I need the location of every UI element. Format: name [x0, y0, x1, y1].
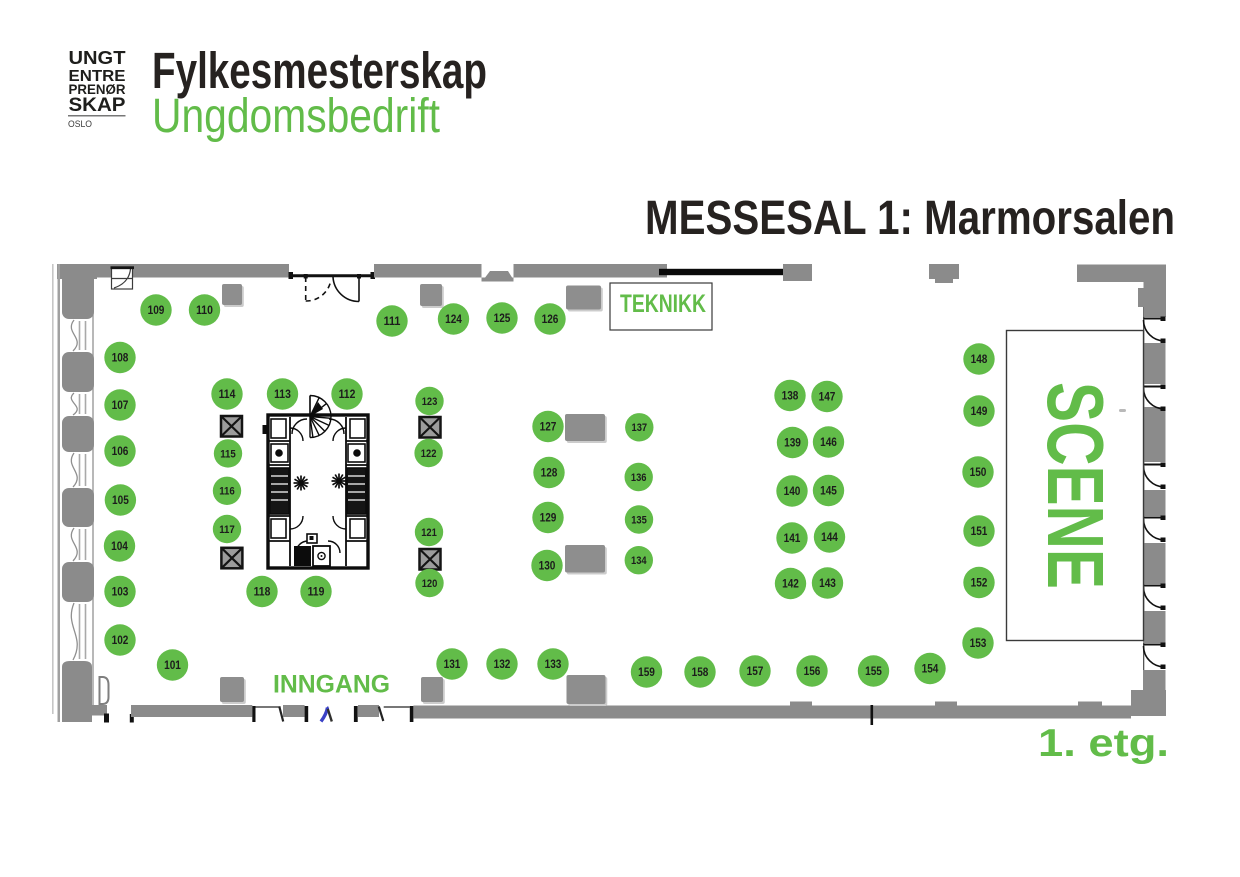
svg-text:110: 110 — [196, 305, 213, 317]
svg-text:INNGANG: INNGANG — [273, 671, 390, 699]
svg-text:121: 121 — [421, 527, 437, 539]
svg-text:130: 130 — [539, 561, 556, 573]
svg-text:158: 158 — [692, 667, 709, 679]
svg-text:139: 139 — [784, 438, 801, 450]
svg-text:129: 129 — [540, 513, 557, 525]
svg-text:MESSESAL 1: Marmorsalen: MESSESAL 1: Marmorsalen — [645, 192, 1175, 245]
svg-text:154: 154 — [922, 664, 939, 676]
svg-text:155: 155 — [865, 666, 882, 678]
svg-text:120: 120 — [422, 578, 438, 590]
svg-text:135: 135 — [631, 514, 647, 526]
svg-text:128: 128 — [541, 468, 558, 480]
svg-text:125: 125 — [494, 313, 511, 325]
svg-text:126: 126 — [542, 314, 559, 326]
svg-text:136: 136 — [631, 472, 647, 484]
svg-text:113: 113 — [274, 389, 291, 401]
svg-text:134: 134 — [631, 555, 647, 567]
svg-text:122: 122 — [421, 448, 437, 460]
svg-text:SCENE: SCENE — [1031, 382, 1120, 589]
svg-text:146: 146 — [820, 437, 837, 449]
svg-text:131: 131 — [444, 659, 461, 671]
svg-text:133: 133 — [545, 659, 562, 671]
svg-text:137: 137 — [632, 422, 648, 434]
svg-text:119: 119 — [308, 587, 325, 599]
svg-text:152: 152 — [971, 578, 988, 590]
svg-text:156: 156 — [804, 666, 821, 678]
svg-text:150: 150 — [970, 467, 987, 479]
svg-text:151: 151 — [971, 526, 988, 538]
svg-text:111: 111 — [384, 316, 401, 328]
svg-text:124: 124 — [445, 314, 462, 326]
svg-text:153: 153 — [970, 638, 987, 650]
svg-text:117: 117 — [219, 524, 235, 536]
svg-text:Ungdomsbedrift: Ungdomsbedrift — [152, 90, 440, 143]
svg-text:105: 105 — [112, 495, 129, 507]
svg-text:108: 108 — [112, 353, 129, 365]
svg-text:145: 145 — [820, 486, 837, 498]
svg-text:1. etg.: 1. etg. — [1038, 722, 1169, 765]
svg-text:103: 103 — [112, 587, 129, 599]
svg-text:109: 109 — [148, 305, 165, 317]
svg-text:SKAP: SKAP — [69, 94, 126, 116]
svg-text:107: 107 — [112, 400, 129, 412]
svg-text:TEKNIKK: TEKNIKK — [620, 290, 706, 318]
svg-text:138: 138 — [782, 391, 799, 403]
svg-text:112: 112 — [339, 389, 356, 401]
svg-text:148: 148 — [971, 354, 988, 366]
svg-text:141: 141 — [784, 533, 801, 545]
svg-text:UNGT: UNGT — [69, 48, 126, 68]
svg-text:142: 142 — [782, 579, 799, 591]
svg-text:101: 101 — [164, 660, 181, 672]
svg-text:143: 143 — [819, 578, 836, 590]
svg-text:116: 116 — [219, 486, 235, 498]
svg-text:157: 157 — [747, 666, 764, 678]
svg-text:144: 144 — [821, 532, 838, 544]
svg-text:114: 114 — [219, 389, 236, 401]
svg-text:123: 123 — [422, 396, 438, 408]
svg-text:147: 147 — [819, 392, 836, 404]
svg-text:127: 127 — [540, 422, 557, 434]
svg-text:102: 102 — [112, 635, 129, 647]
svg-text:149: 149 — [971, 406, 988, 418]
svg-text:115: 115 — [220, 448, 236, 460]
svg-text:132: 132 — [494, 659, 511, 671]
svg-text:159: 159 — [638, 667, 655, 679]
svg-text:OSLO: OSLO — [68, 119, 92, 130]
svg-text:106: 106 — [112, 446, 129, 458]
svg-text:104: 104 — [111, 541, 128, 553]
svg-text:140: 140 — [784, 486, 801, 498]
svg-text:118: 118 — [254, 587, 271, 599]
